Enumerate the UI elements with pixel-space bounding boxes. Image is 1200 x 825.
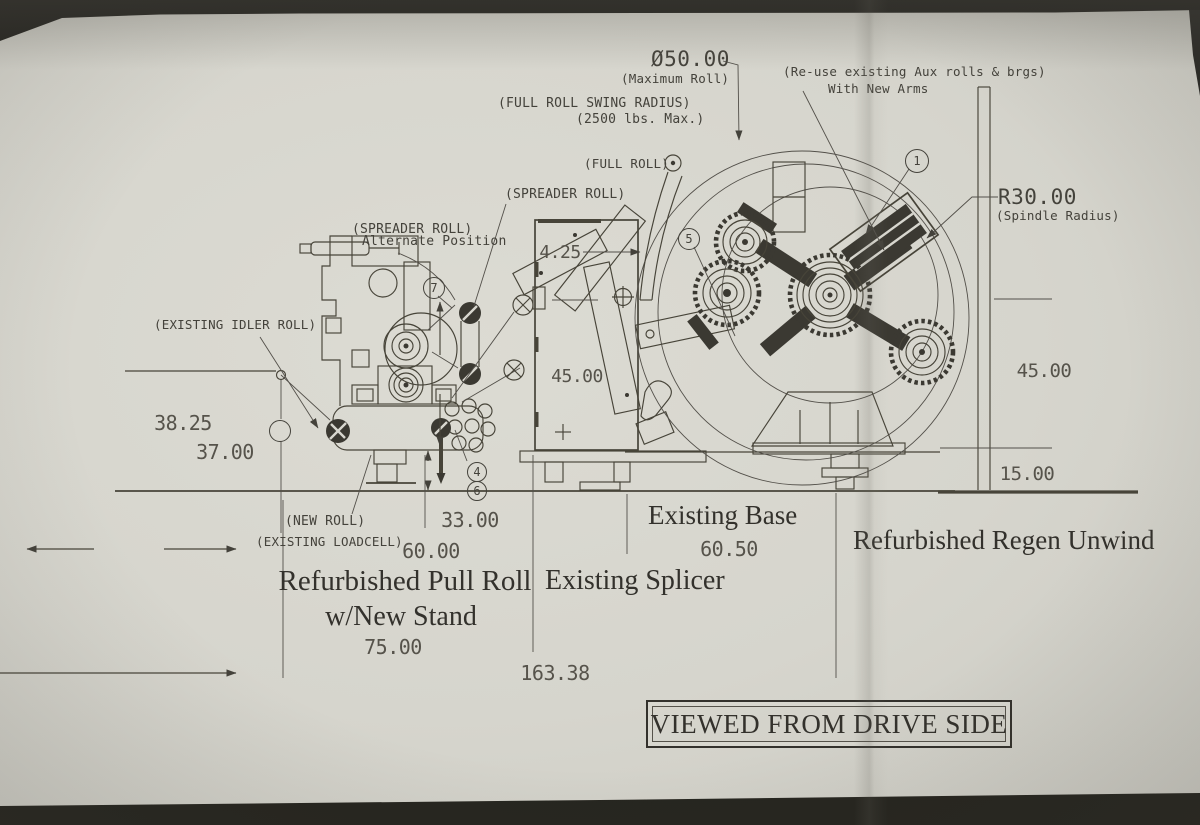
callout-alternate-position: Alternate Position xyxy=(362,234,506,249)
view-note-box: VIEWED FROM DRIVE SIDE xyxy=(646,700,1012,748)
left-height-dimensions xyxy=(0,337,371,533)
callout-existing-idler-roll: (EXISTING IDLER ROLL) xyxy=(154,317,316,332)
balloon-4: 4 xyxy=(467,462,487,482)
label-existing-base: Existing Base xyxy=(648,500,797,531)
dim-offset: 4.25 xyxy=(539,242,580,263)
balloon-unlabeled xyxy=(269,420,291,442)
callout-swing-radius: (FULL ROLL SWING RADIUS) xyxy=(498,96,691,111)
existing-base-rail xyxy=(625,443,940,489)
callout-max-roll: (Maximum Roll) xyxy=(621,71,729,86)
callout-spindle-radius: R30.00 xyxy=(998,185,1077,209)
dim-base-height: 15.00 xyxy=(1000,463,1055,485)
callout-spindle-radius-note: (Spindle Radius) xyxy=(996,208,1120,223)
balloon-5-number: 5 xyxy=(685,232,692,246)
balloon-4-number: 4 xyxy=(473,465,480,479)
ground-line xyxy=(115,491,1138,492)
view-note-text: VIEWED FROM DRIVE SIDE xyxy=(651,709,1008,740)
label-regen-unwind: Refurbished Regen Unwind xyxy=(853,525,1154,556)
callout-max-roll-diameter: Ø50.00 xyxy=(651,47,730,71)
callout-new-roll: (NEW ROLL) xyxy=(285,514,365,529)
label-pull-roll-line2: w/New Stand xyxy=(325,601,477,633)
balloon-1: 1 xyxy=(905,149,929,173)
balloon-5: 5 xyxy=(678,228,700,250)
callout-with-new-arms: With New Arms xyxy=(828,81,928,96)
dim-roll-span: 33.00 xyxy=(441,508,499,532)
dim-base-span: 60.50 xyxy=(700,537,758,561)
regen-unwind-machine xyxy=(635,87,990,490)
callout-reuse-aux-rolls: (Re-use existing Aux rolls & brgs) xyxy=(783,64,1046,79)
dim-roll-height: 37.00 xyxy=(196,440,254,464)
callout-spreader-roll: (SPREADER ROLL) xyxy=(505,187,625,202)
balloon-6: 6 xyxy=(467,481,487,501)
dim-unwind-height: 45.00 xyxy=(1017,360,1072,382)
callout-swing-max-weight: (2500 lbs. Max.) xyxy=(576,112,704,127)
callout-existing-loadcell: (EXISTING LOADCELL) xyxy=(256,534,403,549)
balloon-1-number: 1 xyxy=(913,154,920,168)
label-existing-splicer: Existing Splicer xyxy=(545,565,725,597)
dim-total-span: 163.38 xyxy=(520,661,589,685)
callout-full-roll: (FULL ROLL) xyxy=(584,156,669,171)
dim-stand-span: 75.00 xyxy=(364,635,422,659)
dim-splicer-height: 45.00 xyxy=(551,366,603,387)
splicer-machine xyxy=(504,205,706,490)
dim-idler-height: 38.25 xyxy=(154,411,212,435)
balloon-7: 7 xyxy=(423,277,445,299)
photographed-cad-drawing: Ø50.00 (Maximum Roll) (FULL ROLL SWING R… xyxy=(0,0,1200,825)
balloon-7-number: 7 xyxy=(430,281,437,295)
label-pull-roll-line1: Refurbished Pull Roll xyxy=(279,565,532,598)
dim-pullroll-span: 60.00 xyxy=(402,539,460,563)
balloon-6-number: 6 xyxy=(473,484,480,498)
